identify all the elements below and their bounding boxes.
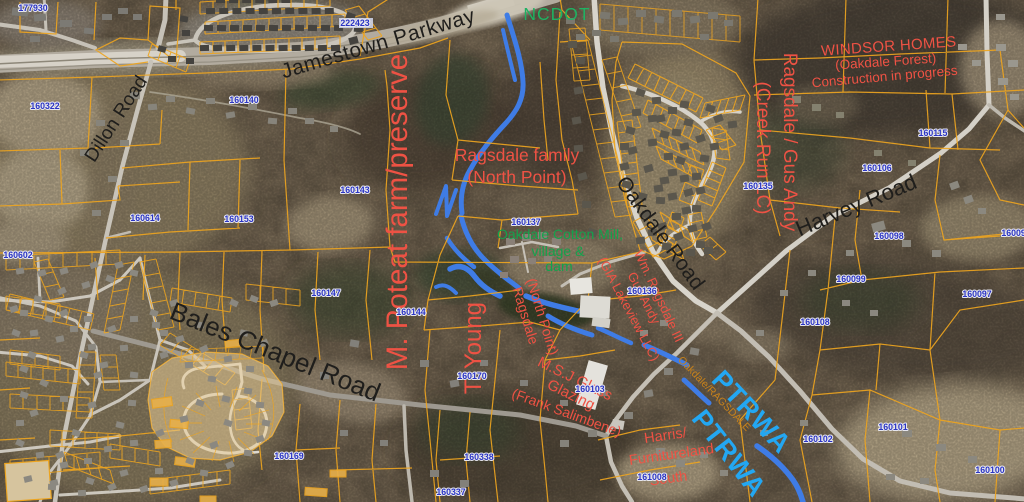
- svg-text:160338: 160338: [464, 452, 493, 462]
- svg-text:Oakdale Cotton Mill,: Oakdale Cotton Mill,: [497, 226, 623, 242]
- svg-text:Ragsdale family: Ragsdale family: [455, 145, 580, 165]
- svg-text:160135: 160135: [743, 181, 772, 191]
- svg-text:160115: 160115: [919, 128, 948, 138]
- svg-text:160097: 160097: [962, 289, 991, 299]
- svg-text:160143: 160143: [340, 185, 369, 195]
- svg-text:160140: 160140: [229, 95, 258, 105]
- svg-text:(Creek Run LC): (Creek Run LC): [752, 81, 773, 214]
- svg-text:160602: 160602: [3, 250, 32, 260]
- svg-text:160169: 160169: [274, 451, 303, 461]
- svg-text:160096: 160096: [1001, 228, 1024, 238]
- svg-text:Ragsdale / Gus Andy: Ragsdale / Gus Andy: [779, 53, 800, 232]
- svg-text:160098: 160098: [874, 231, 903, 241]
- svg-text:160614: 160614: [130, 213, 159, 223]
- svg-text:160102: 160102: [803, 434, 832, 444]
- svg-text:village &: village &: [532, 243, 586, 259]
- svg-text:dam: dam: [545, 258, 572, 274]
- svg-text:160101: 160101: [878, 422, 907, 432]
- svg-text:160137: 160137: [511, 217, 540, 227]
- svg-text:161008: 161008: [637, 472, 666, 482]
- svg-text:160106: 160106: [862, 163, 891, 173]
- svg-text:160337: 160337: [436, 487, 465, 497]
- svg-text:160144: 160144: [396, 307, 425, 317]
- svg-text:160153: 160153: [224, 214, 253, 224]
- svg-text:177930: 177930: [18, 3, 47, 13]
- svg-text:160136: 160136: [627, 286, 656, 296]
- svg-text:160170: 160170: [457, 371, 486, 381]
- svg-text:160103: 160103: [575, 384, 604, 394]
- svg-text:160322: 160322: [30, 101, 59, 111]
- svg-text:M. Poteat farm/preserve: M. Poteat farm/preserve: [381, 54, 414, 370]
- svg-text:160100: 160100: [975, 465, 1004, 475]
- svg-text:160108: 160108: [800, 317, 829, 327]
- svg-text:160099: 160099: [836, 274, 865, 284]
- svg-text:(North Point): (North Point): [467, 167, 566, 187]
- svg-text:NCDOT: NCDOT: [523, 4, 590, 24]
- svg-text:222423: 222423: [340, 18, 369, 28]
- svg-text:160147: 160147: [311, 288, 340, 298]
